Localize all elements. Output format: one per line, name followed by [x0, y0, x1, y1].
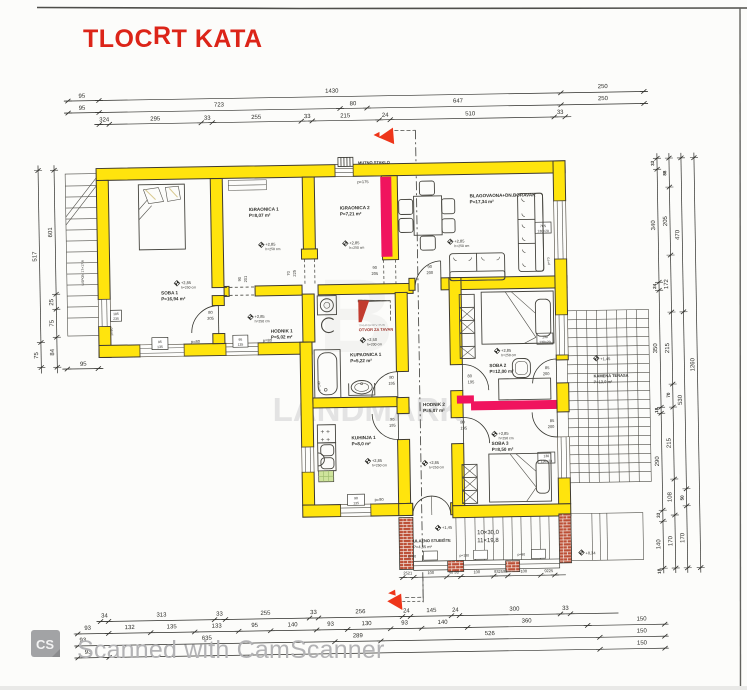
svg-text:OTVOR ZA TAVAN: OTVOR ZA TAVAN: [359, 327, 394, 333]
svg-text:24: 24: [382, 113, 389, 119]
svg-text:95: 95: [251, 623, 258, 629]
svg-text:90: 90: [354, 496, 358, 500]
svg-text:CS: CS: [36, 637, 54, 652]
svg-text:1430: 1430: [325, 89, 339, 95]
svg-text:P=7,21 m²: P=7,21 m²: [340, 211, 362, 216]
svg-text:340: 340: [651, 220, 657, 231]
svg-text:SOBA 2: SOBA 2: [489, 363, 506, 368]
svg-text:93: 93: [401, 620, 408, 626]
svg-text:P=8,07 m²: P=8,07 m²: [249, 213, 271, 218]
svg-text:h=250 cm: h=250 cm: [372, 463, 387, 467]
svg-text:510: 510: [465, 111, 476, 117]
svg-text:10×30,0: 10×30,0: [477, 530, 500, 536]
svg-text:P=16,94 m²: P=16,94 m²: [161, 296, 186, 301]
svg-text:+1,45: +1,45: [442, 525, 453, 530]
svg-text:P=5,02 m²: P=5,02 m²: [271, 334, 293, 339]
svg-text:93: 93: [327, 622, 334, 628]
svg-text:IGRAONICA 2: IGRAONICA 2: [340, 205, 370, 211]
svg-text:235: 235: [113, 317, 119, 321]
svg-text:130: 130: [362, 621, 373, 627]
svg-text:+ +: + +: [320, 429, 330, 436]
svg-text:932593: 932593: [494, 569, 508, 574]
svg-text:33: 33: [304, 114, 311, 120]
svg-text:KUPAONICA 1: KUPAONICA 1: [350, 352, 382, 358]
svg-text:ULAZNO STUBIŠTE: ULAZNO STUBIŠTE: [413, 538, 451, 544]
svg-text:KUHINJA 1: KUHINJA 1: [351, 435, 376, 440]
svg-text:205: 205: [663, 215, 669, 226]
svg-text:133: 133: [212, 624, 223, 630]
svg-text:530: 530: [678, 394, 684, 405]
svg-text:h=250 cm: h=250 cm: [349, 246, 364, 250]
svg-text:+2,50: +2,50: [367, 337, 378, 342]
svg-text:100: 100: [520, 568, 528, 573]
svg-text:140: 140: [656, 539, 662, 550]
svg-text:+2,85: +2,85: [349, 240, 360, 245]
svg-text:+2,85: +2,85: [501, 348, 512, 353]
svg-text:255: 255: [251, 115, 262, 121]
svg-text:170: 170: [668, 535, 674, 546]
svg-text:170: 170: [680, 532, 686, 543]
svg-text:93: 93: [84, 626, 91, 632]
svg-text:135: 135: [157, 345, 163, 349]
svg-text:80: 80: [350, 101, 357, 107]
svg-text:h=250 cm: h=250 cm: [499, 436, 514, 440]
svg-text:USPON 17×17,6: USPON 17×17,6: [81, 260, 85, 286]
svg-text:84: 84: [50, 348, 56, 355]
svg-text:2521: 2521: [403, 570, 413, 575]
svg-text:P=13,9 m²: P=13,9 m²: [594, 379, 613, 384]
svg-text:+2,85: +2,85: [181, 280, 192, 285]
svg-text:Scanned with CamScanner: Scanned with CamScanner: [77, 636, 385, 664]
svg-text:p=80: p=80: [191, 339, 201, 344]
svg-text:33: 33: [204, 116, 211, 122]
svg-text:h=250 cm: h=250 cm: [429, 465, 444, 469]
svg-text:P=5,07 m²: P=5,07 m²: [423, 408, 445, 413]
svg-text:50: 50: [680, 495, 685, 501]
svg-text:200: 200: [548, 424, 556, 429]
svg-text:360: 360: [522, 618, 533, 624]
svg-text:200: 200: [543, 371, 551, 376]
svg-text:132: 132: [125, 625, 136, 631]
svg-text:p=140: p=140: [317, 381, 321, 391]
svg-text:KAMENA TERASA: KAMENA TERASA: [594, 373, 629, 379]
svg-text:h=250 cm: h=250 cm: [265, 247, 280, 251]
svg-text:105: 105: [113, 312, 119, 316]
svg-text:+2,85: +2,85: [429, 460, 440, 465]
svg-text:140: 140: [288, 622, 299, 628]
svg-text:95: 95: [80, 362, 87, 368]
svg-text:IGRAONICA 1: IGRAONICA 1: [249, 207, 279, 213]
svg-text:195: 195: [388, 381, 396, 386]
svg-text:24: 24: [652, 283, 657, 289]
svg-text:100: 100: [473, 569, 481, 574]
svg-text:33: 33: [650, 160, 655, 166]
svg-text:1260: 1260: [690, 357, 696, 371]
svg-text:25: 25: [49, 298, 55, 305]
svg-text:70: 70: [666, 392, 671, 398]
svg-text:24: 24: [403, 608, 410, 614]
svg-text:33: 33: [216, 612, 223, 618]
svg-text:295: 295: [150, 116, 161, 122]
svg-text:h=250 cm: h=250 cm: [181, 285, 196, 289]
svg-text:HODNIK 1: HODNIK 1: [271, 328, 293, 333]
svg-text:135: 135: [167, 624, 178, 630]
svg-text:250: 250: [598, 84, 609, 90]
svg-text:150: 150: [637, 628, 648, 634]
svg-text:75: 75: [34, 352, 40, 359]
svg-text:250: 250: [598, 96, 609, 102]
svg-text:130: 130: [543, 454, 549, 458]
svg-text:P=4,35 m²: P=4,35 m²: [413, 544, 432, 549]
svg-text:256: 256: [355, 609, 366, 615]
svg-text:+2,85: +2,85: [498, 431, 509, 436]
svg-text:p=60: p=60: [408, 554, 416, 558]
svg-text:+2,85: +2,85: [454, 238, 465, 243]
svg-text:p=90: p=90: [375, 497, 385, 502]
svg-text:135: 135: [353, 501, 359, 505]
svg-text:+2,85: +2,85: [254, 314, 265, 319]
svg-text:145: 145: [426, 608, 437, 614]
svg-text:33: 33: [310, 610, 317, 616]
svg-text:215: 215: [665, 342, 671, 353]
svg-text:40 93: 40 93: [449, 570, 460, 575]
svg-text:324: 324: [99, 117, 110, 123]
svg-text:195: 195: [389, 423, 397, 428]
svg-text:95: 95: [238, 338, 242, 342]
svg-text:+0,34: +0,34: [585, 550, 596, 555]
svg-text:11×19,8: 11×19,8: [477, 538, 499, 544]
svg-text:P=17,34 m²: P=17,34 m²: [470, 199, 495, 204]
svg-text:P=5,22 m²: P=5,22 m²: [350, 358, 372, 363]
svg-text:205: 205: [371, 271, 379, 276]
svg-text:HODNIK 2: HODNIK 2: [423, 402, 445, 407]
svg-text:33: 33: [562, 606, 569, 612]
svg-text:723: 723: [214, 102, 225, 108]
svg-text:300: 300: [509, 607, 520, 613]
svg-text:75: 75: [50, 319, 56, 326]
svg-text:172: 172: [664, 278, 670, 289]
svg-text:255: 255: [260, 611, 271, 617]
svg-text:647: 647: [453, 98, 464, 104]
svg-text:150: 150: [637, 616, 648, 622]
svg-text:140: 140: [438, 620, 449, 626]
svg-text:SOBA 3: SOBA 3: [492, 441, 509, 446]
svg-text:p=175: p=175: [357, 179, 369, 184]
svg-text:P=8,0 m²: P=8,0 m²: [352, 441, 372, 446]
svg-text:h=250 cm: h=250 cm: [255, 319, 270, 323]
svg-text:350: 350: [653, 343, 659, 354]
svg-text:215: 215: [667, 437, 673, 448]
svg-text:108: 108: [667, 491, 673, 502]
svg-text:205: 205: [207, 316, 215, 321]
svg-text:470: 470: [675, 229, 681, 240]
svg-text:225: 225: [292, 269, 297, 277]
svg-text:p=130: p=130: [459, 553, 469, 557]
svg-text:+1,45: +1,45: [600, 356, 611, 361]
svg-text:195: 195: [468, 379, 476, 384]
svg-text:88: 88: [662, 170, 667, 176]
svg-text:18: 18: [657, 568, 662, 574]
svg-text:526: 526: [485, 631, 496, 637]
svg-text:9225: 9225: [544, 568, 554, 573]
svg-text:150: 150: [637, 640, 648, 646]
svg-text:h=250 cm: h=250 cm: [501, 353, 516, 357]
svg-text:601: 601: [48, 227, 54, 238]
svg-text:P=8,50 m²: P=8,50 m²: [492, 447, 514, 452]
svg-text:P=12,00 m²: P=12,00 m²: [489, 369, 514, 374]
svg-text:+2,85: +2,85: [265, 242, 276, 247]
svg-text:+2,85: +2,85: [372, 458, 383, 463]
svg-text:200: 200: [426, 270, 434, 275]
svg-text:95: 95: [78, 94, 85, 100]
svg-text:24: 24: [452, 608, 459, 614]
svg-text:135: 135: [238, 343, 244, 347]
svg-text:313: 313: [156, 612, 167, 618]
svg-text:195: 195: [460, 425, 468, 430]
svg-text:100: 100: [427, 570, 435, 575]
svg-text:201: 201: [243, 275, 248, 283]
svg-text:TLOCRT KATA: TLOCRT KATA: [83, 22, 263, 53]
svg-text:p=90: p=90: [110, 328, 114, 336]
svg-text:SOBA 1: SOBA 1: [161, 290, 178, 295]
svg-text:34: 34: [101, 613, 108, 619]
svg-text:p=70: p=70: [547, 257, 551, 265]
svg-text:h=250 cm: h=250 cm: [454, 244, 469, 248]
svg-text:p=90: p=90: [517, 553, 525, 557]
svg-text:h=200 cm: h=200 cm: [367, 342, 382, 346]
svg-text:517: 517: [32, 251, 38, 262]
svg-text:95: 95: [158, 340, 162, 344]
svg-text:18: 18: [654, 407, 659, 413]
svg-text:33: 33: [656, 512, 661, 518]
svg-text:MUTNO STAKLO: MUTNO STAKLO: [358, 160, 390, 166]
svg-text:290: 290: [655, 456, 661, 467]
svg-text:95: 95: [79, 106, 86, 112]
svg-text:33: 33: [557, 110, 564, 116]
svg-text:215: 215: [340, 113, 351, 119]
